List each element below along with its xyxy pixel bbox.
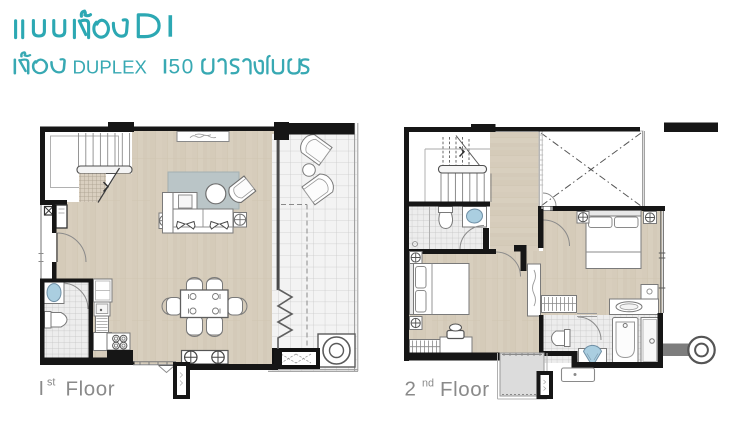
svg-text:I: I (39, 378, 45, 400)
svg-text:Floor: Floor (440, 378, 490, 401)
svg-text:DUPLEX: DUPLEX (73, 57, 148, 78)
svg-text:st: st (47, 377, 55, 389)
svg-text:nd: nd (422, 377, 434, 389)
svg-text:2: 2 (405, 378, 416, 401)
svg-text:Floor: Floor (66, 377, 116, 400)
svg-text:50: 50 (169, 56, 195, 79)
